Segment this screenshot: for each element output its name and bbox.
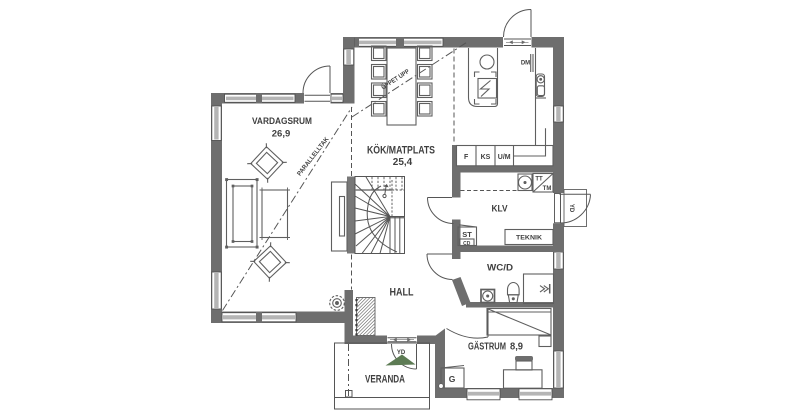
svg-text:26,9: 26,9 — [272, 129, 291, 140]
svg-text:VARDAGSRUM: VARDAGSRUM — [252, 116, 312, 127]
svg-text:U/M: U/M — [498, 154, 511, 161]
svg-text:KLV: KLV — [492, 204, 509, 215]
svg-text:8,9: 8,9 — [510, 342, 523, 353]
svg-text:HALL: HALL — [390, 287, 414, 299]
svg-text:CD: CD — [463, 241, 471, 247]
svg-text:F: F — [464, 154, 469, 161]
svg-text:DM: DM — [521, 61, 530, 67]
svg-text:G: G — [449, 374, 456, 384]
svg-text:WC/D: WC/D — [487, 262, 513, 273]
svg-text:VERANDA: VERANDA — [365, 374, 405, 386]
svg-text:KÖK/MATPLATS: KÖK/MATPLATS — [367, 144, 435, 157]
svg-text:ST: ST — [462, 230, 472, 239]
svg-text:25,4: 25,4 — [393, 157, 413, 168]
svg-text:YD: YD — [568, 204, 574, 213]
svg-text:GÄSTRUM: GÄSTRUM — [468, 340, 506, 353]
svg-text:TEKNIK: TEKNIK — [516, 235, 542, 242]
svg-text:KS: KS — [481, 154, 491, 161]
svg-text:TT: TT — [535, 177, 543, 183]
svg-text:TM: TM — [543, 186, 552, 192]
